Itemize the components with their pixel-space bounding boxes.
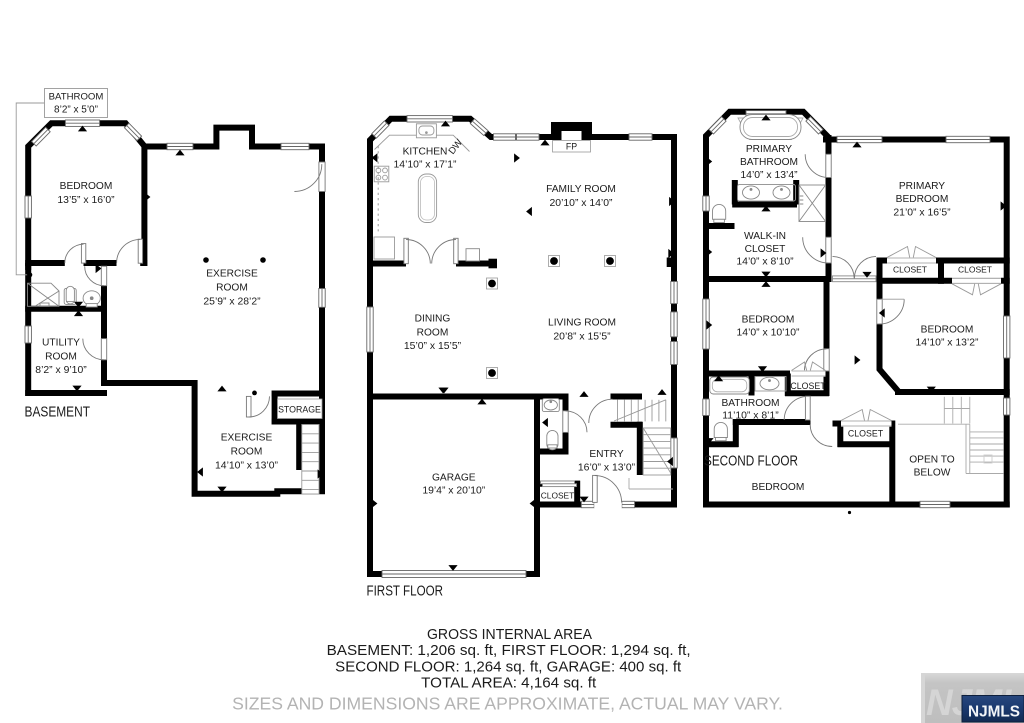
svg-text:ENTRY: ENTRY bbox=[589, 449, 624, 460]
svg-text:14’0” x 13’4”: 14’0” x 13’4” bbox=[740, 170, 798, 181]
svg-text:BEDROOM: BEDROOM bbox=[752, 482, 805, 493]
svg-text:14’10” x 17’1”: 14’10” x 17’1” bbox=[394, 160, 457, 171]
svg-text:ROOM: ROOM bbox=[216, 283, 248, 294]
svg-text:14’10” x 13’2”: 14’10” x 13’2” bbox=[916, 338, 979, 349]
svg-text:NJMLS: NJMLS bbox=[968, 704, 1020, 721]
svg-text:CLOSET: CLOSET bbox=[848, 429, 884, 439]
svg-text:BELOW: BELOW bbox=[914, 468, 951, 479]
svg-text:GROSS INTERNAL AREA: GROSS INTERNAL AREA bbox=[427, 627, 592, 643]
svg-text:PRIMARY: PRIMARY bbox=[899, 181, 945, 192]
svg-text:DINING: DINING bbox=[415, 314, 451, 325]
svg-text:EXERCISE: EXERCISE bbox=[206, 269, 258, 280]
svg-text:BEDROOM: BEDROOM bbox=[921, 325, 974, 336]
svg-text:CLOSET: CLOSET bbox=[790, 381, 826, 391]
svg-text:BASEMENT: BASEMENT bbox=[25, 404, 91, 421]
svg-text:CLOSET: CLOSET bbox=[958, 265, 992, 275]
svg-text:SECOND FLOOR: 1,264 sq. ft, GA: SECOND FLOOR: 1,264 sq. ft, GARAGE: 400 … bbox=[335, 659, 681, 675]
svg-text:BATHROOM: BATHROOM bbox=[49, 92, 104, 103]
svg-text:LIVING ROOM: LIVING ROOM bbox=[548, 318, 616, 329]
svg-text:16’0” x 13’0”: 16’0” x 13’0” bbox=[578, 463, 636, 474]
svg-text:19’4” x 20’10”: 19’4” x 20’10” bbox=[422, 486, 485, 497]
svg-text:14’0” x 8’10”: 14’0” x 8’10” bbox=[736, 257, 794, 268]
svg-text:STORAGE: STORAGE bbox=[278, 405, 321, 415]
svg-text:CLOSET: CLOSET bbox=[893, 265, 927, 275]
svg-text:SECOND FLOOR: SECOND FLOOR bbox=[704, 453, 798, 470]
svg-text:8’2” x 9’10”: 8’2” x 9’10” bbox=[35, 365, 87, 376]
svg-text:15’0” x 15’5”: 15’0” x 15’5” bbox=[404, 341, 462, 352]
svg-text:20’8” x 15’5”: 20’8” x 15’5” bbox=[553, 332, 611, 343]
svg-text:8’2” x 5’0”: 8’2” x 5’0” bbox=[54, 105, 98, 116]
svg-text:13’5” x 16’0”: 13’5” x 16’0” bbox=[57, 195, 115, 206]
svg-text:ROOM: ROOM bbox=[231, 447, 263, 458]
svg-text:BATHROOM: BATHROOM bbox=[721, 398, 779, 409]
svg-text:TOTAL AREA: 4,164 sq. ft: TOTAL AREA: 4,164 sq. ft bbox=[421, 675, 596, 691]
svg-text:BEDROOM: BEDROOM bbox=[742, 315, 795, 326]
svg-text:BATHROOM: BATHROOM bbox=[740, 157, 798, 168]
svg-text:ROOM: ROOM bbox=[45, 352, 77, 363]
svg-text:EXERCISE: EXERCISE bbox=[221, 433, 273, 444]
svg-text:BASEMENT: 1,206 sq. ft, FIRST: BASEMENT: 1,206 sq. ft, FIRST FLOOR: 1,2… bbox=[327, 643, 691, 659]
svg-text:FP: FP bbox=[566, 142, 577, 152]
svg-text:BEDROOM: BEDROOM bbox=[896, 194, 949, 205]
svg-text:ROOM: ROOM bbox=[417, 328, 449, 339]
svg-text:WALK-IN: WALK-IN bbox=[744, 231, 786, 242]
svg-text:PRIMARY: PRIMARY bbox=[746, 144, 792, 155]
svg-text:FAMILY ROOM: FAMILY ROOM bbox=[546, 184, 616, 195]
svg-text:OPEN TO: OPEN TO bbox=[909, 455, 955, 466]
svg-text:25’9” x 28’2”: 25’9” x 28’2” bbox=[203, 297, 261, 308]
svg-text:21’0” x 16’5”: 21’0” x 16’5” bbox=[893, 208, 951, 219]
svg-text:CLOSET: CLOSET bbox=[745, 244, 786, 255]
svg-text:20’10” x 14’0”: 20’10” x 14’0” bbox=[550, 198, 613, 209]
svg-text:CLOSET: CLOSET bbox=[541, 490, 575, 500]
svg-text:14’10” x 13’0”: 14’10” x 13’0” bbox=[215, 461, 278, 472]
svg-text:11’10” x 8’1”: 11’10” x 8’1” bbox=[722, 411, 779, 422]
svg-text:UTILITY: UTILITY bbox=[42, 338, 80, 349]
svg-text:GARAGE: GARAGE bbox=[432, 473, 476, 484]
svg-text:KITCHEN: KITCHEN bbox=[403, 147, 448, 158]
svg-text:FIRST FLOOR: FIRST FLOOR bbox=[367, 583, 444, 600]
svg-text:14’0” x 10’10”: 14’0” x 10’10” bbox=[737, 328, 800, 339]
svg-text:SIZES AND DIMENSIONS ARE APPRO: SIZES AND DIMENSIONS ARE APPROXIMATE, AC… bbox=[232, 694, 783, 714]
svg-text:BEDROOM: BEDROOM bbox=[60, 181, 113, 192]
